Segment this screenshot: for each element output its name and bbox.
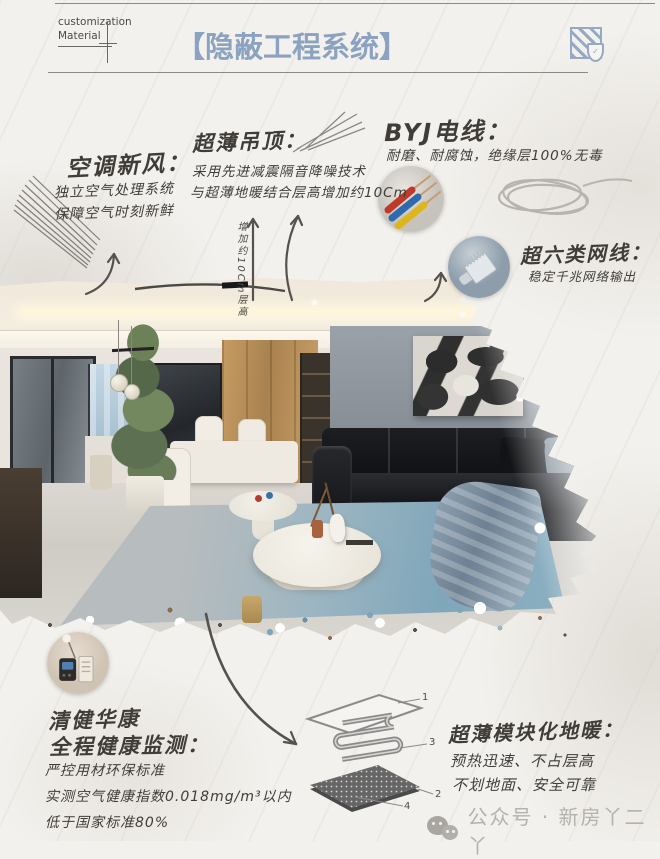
wire-line1: 耐磨、耐腐蚀，绝缘层100%无毒: [386, 144, 603, 164]
shield-check-icon: ✓: [587, 43, 604, 62]
spotlight: [218, 280, 227, 289]
side-table: [229, 491, 297, 521]
wire-title: BYJ电线：: [384, 111, 512, 148]
abstract-artwork: [413, 336, 523, 416]
cable-coil-sketch: [498, 175, 632, 218]
spotlight: [458, 310, 467, 319]
books: [346, 540, 373, 545]
diagram-label-2: 2: [435, 789, 441, 800]
teacup: [266, 492, 273, 499]
blue-pillow: [543, 434, 593, 477]
heating-title: 超薄模块化地暖：: [448, 713, 625, 748]
diagram-label-4: 4: [404, 801, 410, 812]
ceiling-dimension-note: 增加约10Cm层高: [233, 221, 248, 318]
top-rule: [55, 3, 655, 4]
diagram-label-3: 3: [429, 737, 435, 748]
brand-line1: customization: [58, 16, 112, 30]
pendant-globe: [124, 384, 140, 400]
heating-line2: 不划地面、安全可靠: [452, 774, 596, 795]
watermark: 公众号 · 新房丫二丫: [427, 801, 660, 859]
health-line1: 严控用材环保标准: [45, 760, 165, 780]
heating-line1: 预热迅速、不占层高: [450, 750, 594, 771]
crosshair-icon: [99, 43, 117, 44]
living-room-photo: [0, 278, 600, 640]
spotlight: [518, 315, 527, 324]
brand-line2: Material: [58, 30, 112, 44]
arrow-down-heating: [206, 614, 296, 744]
wechat-icon: [427, 816, 461, 844]
material-hatch-icon: ✓: [570, 27, 602, 59]
network-line1: 稳定千兆网络输出: [528, 266, 636, 285]
ceiling-line2: 与超薄地暖结合层高增加约10Cm: [190, 181, 408, 201]
sculpture: [329, 514, 346, 543]
spotlight: [310, 298, 319, 307]
cove-light: [15, 304, 575, 320]
teacup: [255, 495, 262, 502]
hvac-line1: 独立空气处理系统: [54, 178, 175, 202]
watermark-text: 公众号 · 新房丫二丫: [467, 801, 660, 859]
air-monitor-photo: [47, 632, 109, 694]
floor-heating-diagram: [308, 695, 433, 812]
pendant-cord: [131, 326, 132, 384]
rj45-connector-photo: [448, 236, 510, 298]
health-title2: 全程健康监测：: [49, 729, 210, 762]
vase: [312, 520, 323, 538]
diagram-label-1: 1: [422, 692, 428, 703]
gold-stool: [242, 596, 262, 623]
health-line2: 实测空气健康指数0.018mg/m³以内: [45, 786, 292, 806]
health-line3: 低于国家标准80%: [45, 812, 169, 832]
pendant-cord: [118, 320, 119, 378]
tv-console: [0, 468, 42, 598]
network-title: 超六类网线：: [520, 236, 653, 270]
header-rule: [48, 72, 588, 73]
ceiling-title: 超薄吊顶：: [192, 124, 308, 158]
ceiling-line1: 采用先进减震隔音降噪技术: [192, 160, 366, 180]
page-title: 【隐蔽工程系统】: [176, 24, 408, 66]
hvac-line2: 保障空气时刻新鲜: [54, 200, 175, 224]
poster-page: { "header": { "brand": { "line1": "custo…: [0, 0, 660, 841]
